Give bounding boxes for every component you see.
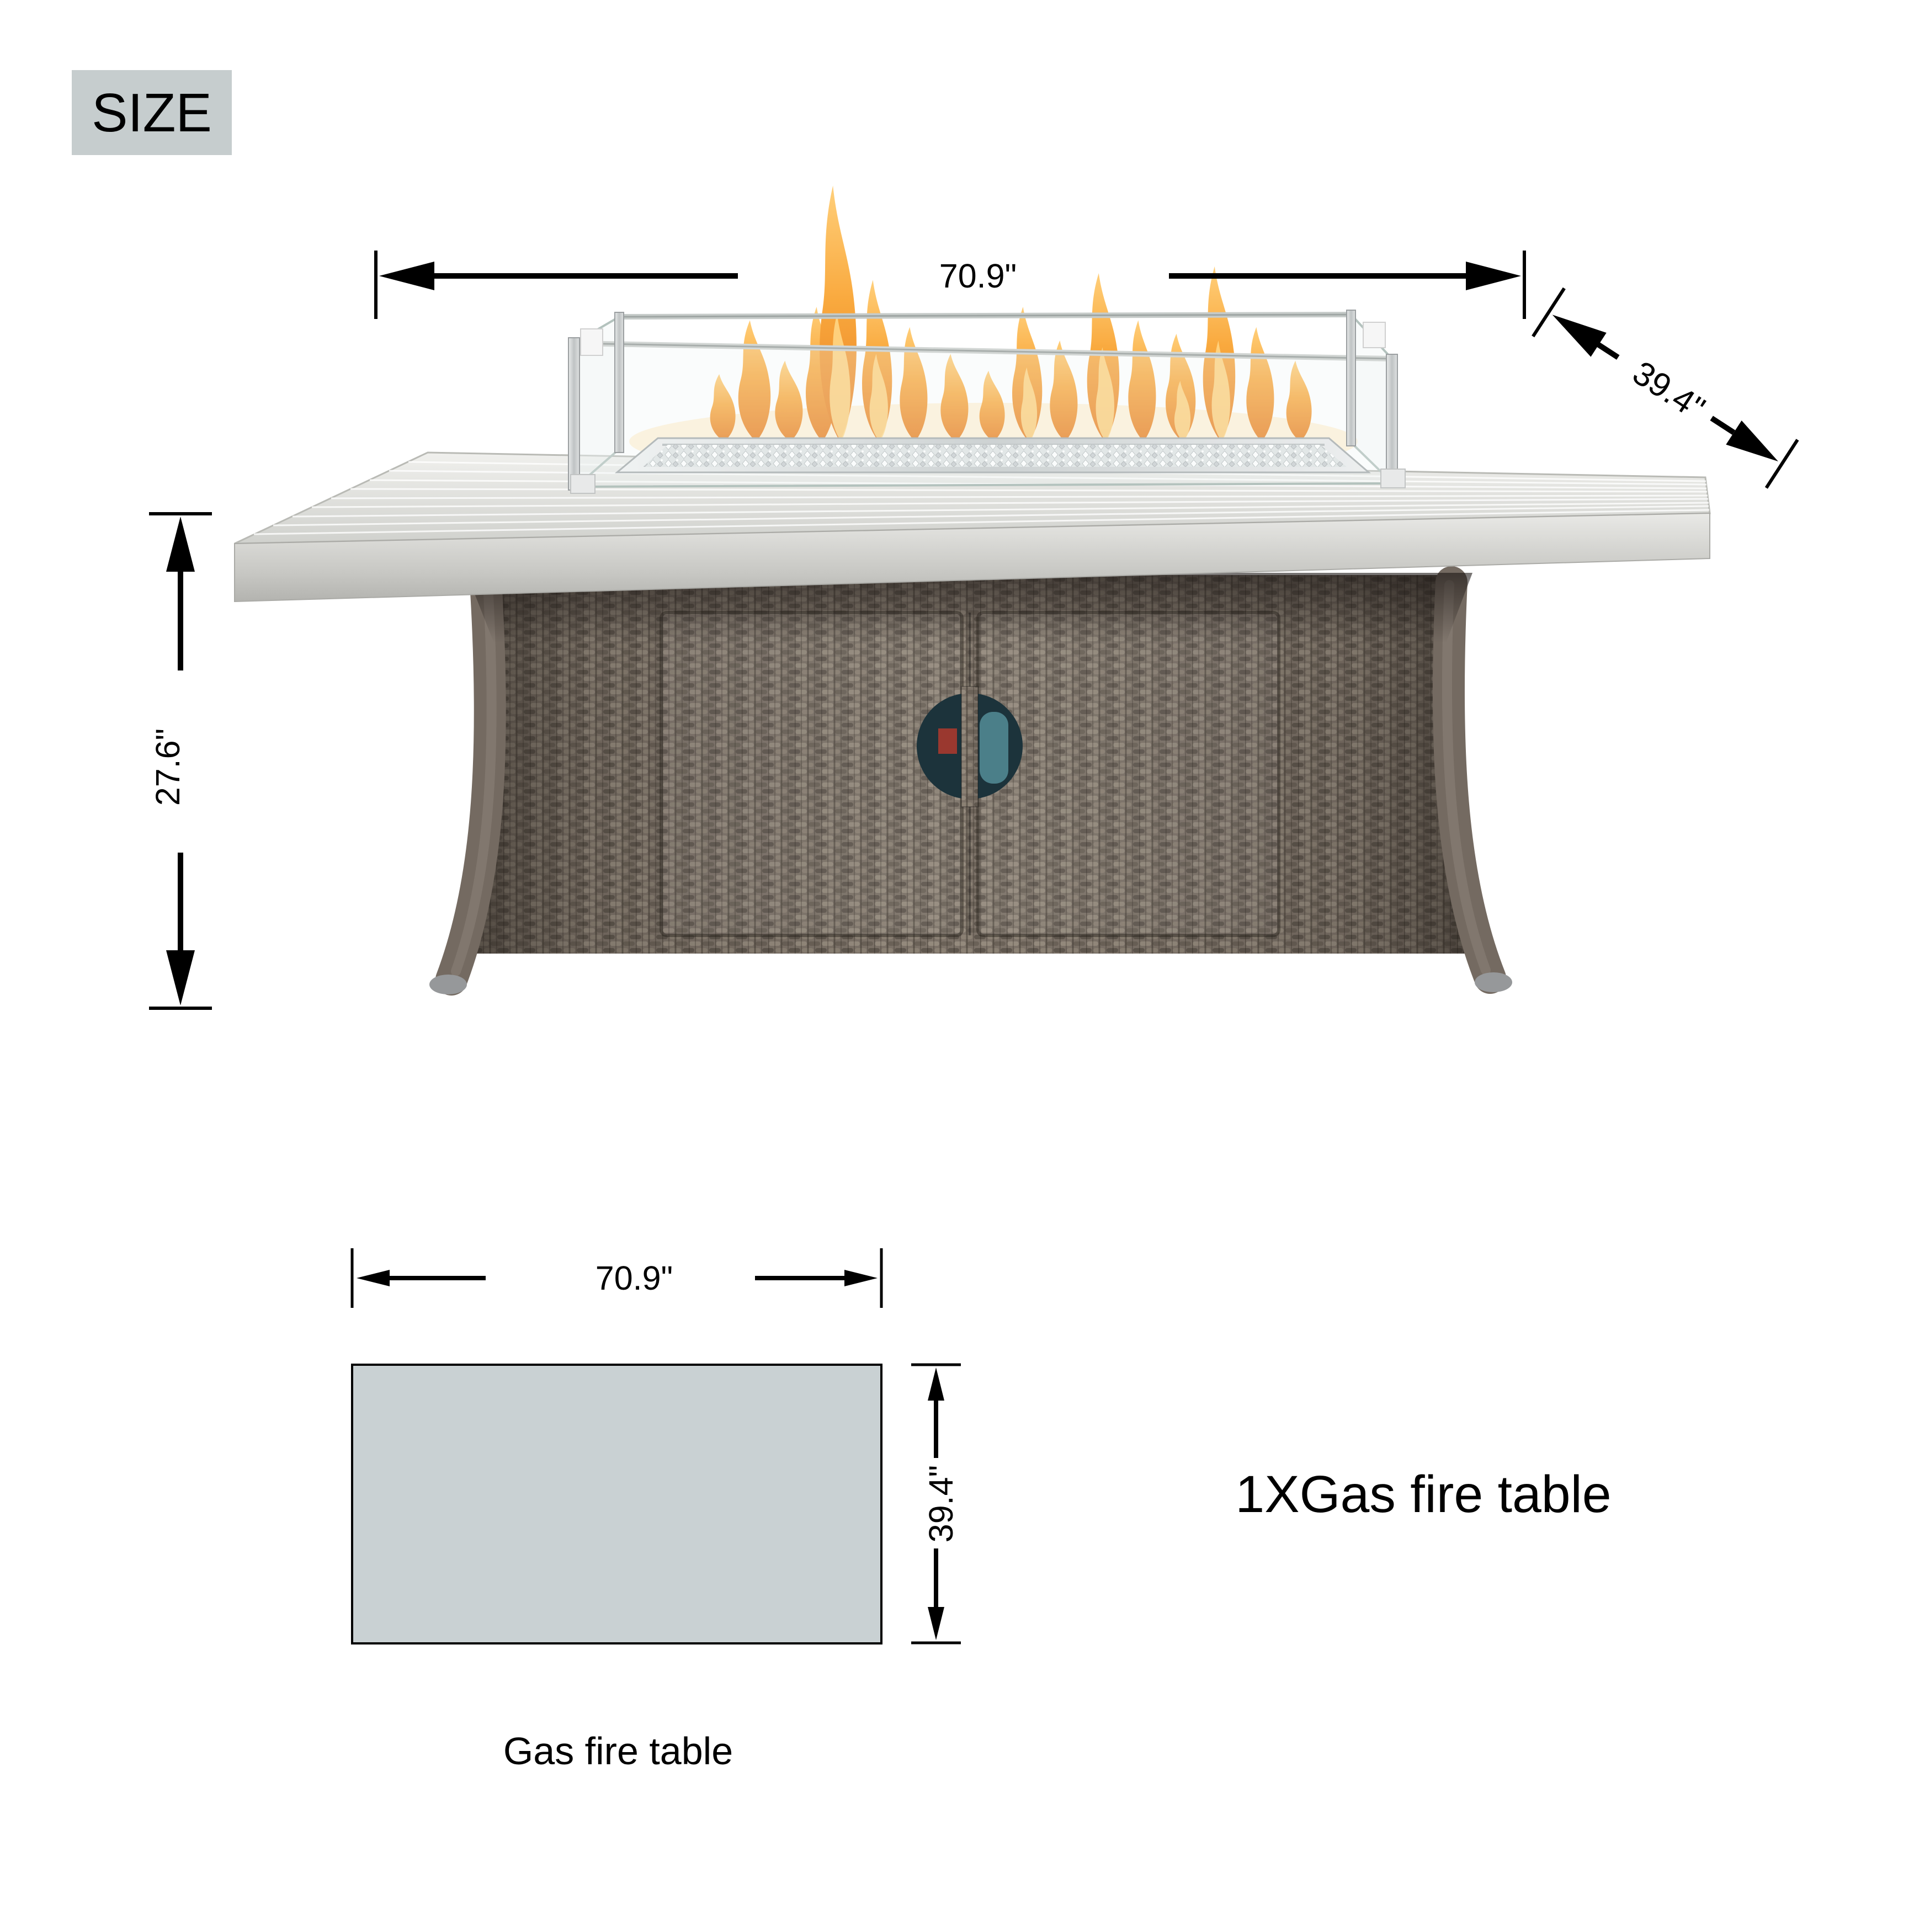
size-badge: SIZE [72,70,232,155]
top-view-width-shaft-left [386,1276,486,1280]
glass-clip-bottom-right [1381,469,1405,488]
glass-post-back-right [1347,310,1355,446]
width-dimension-label: 70.9" [939,257,1017,295]
height-shaft-up [178,568,183,670]
glass-wind-guard [568,310,1405,493]
glass-front-pane [574,343,1393,487]
top-view-depth-label: 39.4" [922,1465,960,1542]
depth-arrowhead-upper [1545,303,1607,357]
width-arrowhead-right [1466,262,1521,290]
size-badge-label: SIZE [92,82,212,143]
depth-shaft-upper [1594,340,1620,360]
top-view-diagram: 70.9" 39.4" Gas fire table [352,1248,961,1773]
depth-tick-lower [1766,440,1798,488]
top-view-caption: Gas fire table [503,1729,733,1773]
depth-shaft-lower [1710,416,1735,435]
top-view-width-arrowhead-left [357,1270,390,1286]
top-view-dimension-width: 70.9" [352,1248,881,1308]
product-photo [235,185,1710,994]
width-shaft-right [1169,273,1469,279]
top-view-width-shaft-right [755,1276,848,1280]
height-shaft-down [178,853,183,954]
glass-post-back-left [615,312,624,453]
left-door [661,613,962,935]
right-foot-cap [1475,972,1512,992]
package-contents-label: 1XGas fire table [1235,1465,1611,1524]
top-view-depth-shaft-up [934,1397,938,1458]
size-diagram-page: SIZE [0,0,1930,1932]
width-arrowhead-left [379,262,434,290]
glass-clip-bottom-left [571,475,595,493]
height-dimension-label: 27.6" [149,728,187,806]
center-wicker-post [961,686,978,807]
top-view-depth-arrowhead-up [928,1367,944,1401]
dimension-depth: 39.4" [1533,288,1798,488]
height-arrowhead-up [166,517,195,572]
glass-post-front-right [1386,354,1397,487]
depth-dimension-label: 39.4" [1626,354,1712,427]
right-door [978,613,1279,935]
glass-bracket-top-right [1363,322,1385,348]
diagram-canvas: SIZE [0,0,1930,1932]
top-view-depth-shaft-down [934,1548,938,1610]
top-view-rectangle [352,1365,881,1643]
top-view-dimension-depth: 39.4" [911,1365,961,1643]
depth-tick-upper [1533,288,1565,336]
top-view-depth-arrowhead-down [928,1607,944,1640]
glass-post-front-left [568,338,579,490]
propane-tank-glimpse [980,712,1008,784]
left-foot-cap [429,975,467,994]
top-view-width-arrowhead-right [844,1270,878,1286]
height-arrowhead-down [166,950,195,1005]
width-shaft-left [430,273,738,279]
top-view-width-label: 70.9" [596,1259,673,1297]
dimension-height: 27.6" [149,514,212,1008]
dimension-width: 70.9" [376,251,1524,319]
tank-label-glimpse [938,728,957,754]
depth-arrowhead-lower [1726,421,1786,473]
glass-bracket-top-left [581,329,603,355]
